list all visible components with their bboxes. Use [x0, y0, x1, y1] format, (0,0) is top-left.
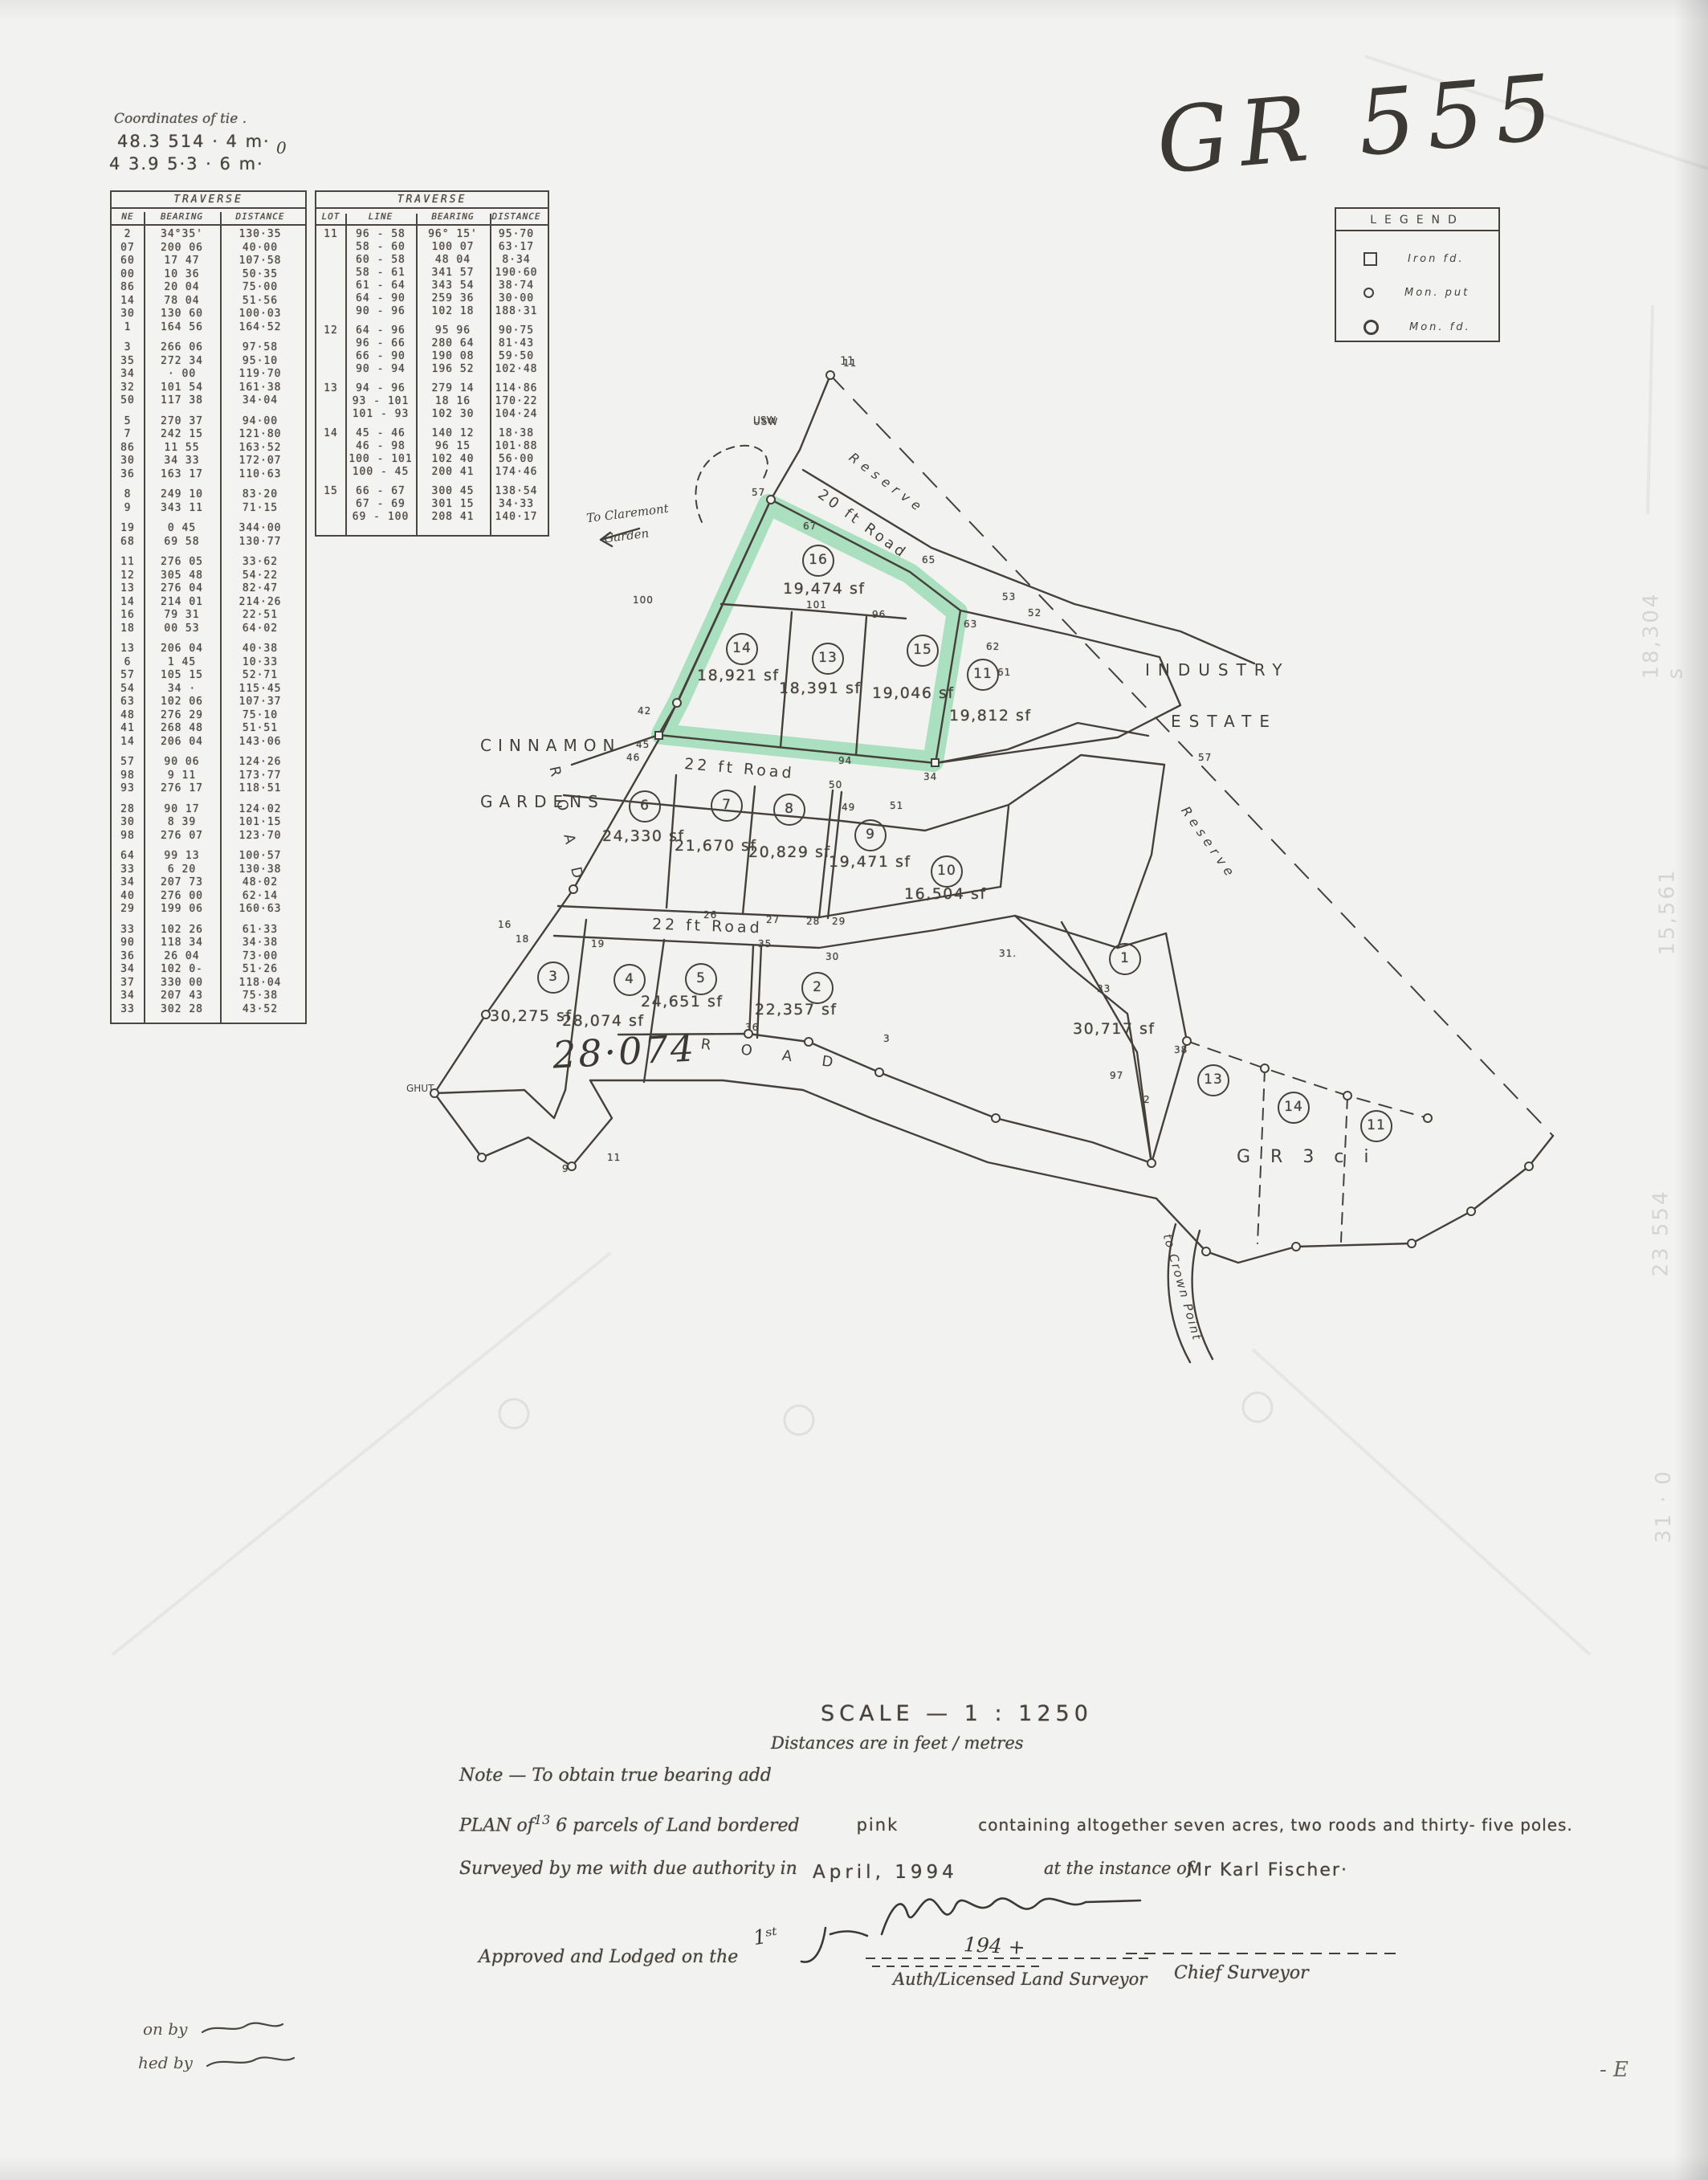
table-row: 8620 0475·00 — [112, 281, 305, 295]
vertex-label: 28 — [806, 916, 820, 927]
table-row: 90118 3434·38 — [112, 937, 305, 950]
table-cell — [316, 254, 345, 267]
table-cell: 107·37 — [220, 696, 300, 709]
plan-containing: containing altogether seven acres, two r… — [978, 1815, 1573, 1835]
table-cell — [316, 350, 345, 363]
table-cell: 83·20 — [220, 488, 300, 502]
table-cell: 64 - 90 — [345, 292, 416, 305]
industry-label: INDUSTRY — [1145, 660, 1290, 680]
table-group: 5790 06124·26989 11173·7793276 17118·51 — [112, 756, 305, 796]
table-cell: 110·63 — [220, 468, 300, 482]
table-cell: 119·70 — [220, 368, 300, 382]
lot-number-marker: 16 — [802, 545, 834, 577]
table-cell: 48 04 — [416, 254, 490, 267]
table-cell: 330 00 — [144, 977, 220, 990]
table-cell: 100·03 — [220, 308, 300, 321]
table-cell: 105 15 — [144, 669, 220, 683]
vertex-label: 31. — [999, 948, 1017, 959]
table-cell: 1 45 — [144, 656, 220, 670]
lot-area-label: 22,357 sf — [755, 1001, 838, 1019]
table-group: 33102 2661·3390118 3434·383626 0473·0034… — [112, 924, 305, 1017]
table-cell: 96 - 66 — [345, 337, 416, 350]
lot-number-marker: 9 — [854, 819, 887, 851]
vertex-label: 101 — [806, 599, 827, 610]
table-cell: 104·24 — [490, 408, 543, 421]
table-cell: 95 96 — [416, 325, 490, 337]
table-row: 1394 - 96279 14114·86 — [316, 382, 548, 395]
table-cell: 16 — [112, 609, 144, 623]
table-cell: 276 07 — [144, 830, 220, 843]
table-cell: 54·22 — [220, 569, 300, 583]
table-row: 1566 - 67300 45138·54 — [316, 485, 548, 498]
table-cell: 22·51 — [220, 609, 300, 623]
table-cell: 10·33 — [220, 656, 300, 670]
table-row: 8249 1083·20 — [112, 488, 305, 502]
table-cell: 61·33 — [220, 924, 300, 937]
lot-number-marker: 8 — [773, 794, 805, 826]
lot-number-marker: 15 — [907, 635, 939, 667]
col-header: LOT — [316, 211, 345, 222]
table-cell: 214·26 — [220, 596, 300, 610]
table-cell: 3 — [112, 341, 144, 355]
lot-number-marker: 11 — [1360, 1110, 1392, 1142]
column-rule — [490, 214, 491, 535]
table-cell: 40·38 — [220, 643, 300, 656]
table-row: 190 45344·00 — [112, 522, 305, 536]
table-cell: 73·00 — [220, 950, 300, 964]
table-cell: 305 48 — [144, 569, 220, 583]
lot-area-label: 19,471 sf — [829, 853, 911, 871]
table-cell: 124·02 — [220, 803, 300, 817]
table-cell: 276 04 — [144, 582, 220, 596]
table-cell: 30·00 — [490, 292, 543, 305]
table-row: 69 - 100208 41140·17 — [316, 511, 548, 524]
legend-item: Mon. fd. — [1364, 320, 1498, 335]
vertex-label: 27 — [766, 914, 780, 925]
lot-number-marker: 14 — [726, 633, 758, 665]
table-row: 989 11173·77 — [112, 770, 305, 783]
table-cell: 214 01 — [144, 596, 220, 610]
table-cell: 174·46 — [490, 466, 543, 479]
table-group: 1196 - 5896° 15'95·7058 - 60100 0763·176… — [316, 228, 548, 318]
table-cell: 17 47 — [144, 255, 220, 268]
table-body: 234°35'130·3507200 0640·006017 47107·580… — [112, 226, 305, 1016]
table-cell: 62·14 — [220, 890, 300, 904]
table-cell: 75·00 — [220, 281, 300, 295]
table-row: 1196 - 5896° 15'95·70 — [316, 228, 548, 241]
traverse-table-left: TRAVERSE NE BEARING DISTANCE 234°35'130·… — [110, 190, 307, 1024]
table-cell: 90·75 — [490, 325, 543, 337]
table-cell: 276 00 — [144, 890, 220, 904]
table-cell: 200 06 — [144, 242, 220, 255]
table-cell: 98 — [112, 770, 144, 783]
table-cell: 90 06 — [144, 756, 220, 770]
table-row: 13206 0440·38 — [112, 643, 305, 656]
table-cell: 00 — [112, 268, 144, 282]
client-name: Mr Karl Fischer· — [1187, 1860, 1348, 1880]
table-row: 234°35'130·35 — [112, 228, 305, 242]
table-cell: 86 — [112, 281, 144, 295]
table-cell: 199 06 — [144, 903, 220, 916]
table-row: 33302 2843·52 — [112, 1003, 305, 1017]
vertex-label: 26 — [703, 909, 717, 921]
vertex-label: 33 — [1097, 983, 1111, 994]
table-cell: 00 53 — [144, 623, 220, 636]
ghost-text: 18,304 s — [1640, 590, 1688, 680]
table-cell: 102·48 — [490, 363, 543, 376]
table-row: 46 - 9896 15101·88 — [316, 440, 548, 453]
table-row: 37330 00118·04 — [112, 977, 305, 990]
table-cell: 279 14 — [416, 382, 490, 395]
surveyor-title: Auth/Licensed Land Surveyor — [893, 1970, 1147, 1989]
vertex-label: 94 — [838, 755, 852, 766]
table-cell — [316, 498, 345, 511]
table-cell: 114·86 — [490, 382, 543, 395]
instance-line: at the instance of — [1044, 1859, 1192, 1878]
table-cell: 90 17 — [144, 803, 220, 817]
table-cell: 163·52 — [220, 442, 300, 455]
table-cell: 8 39 — [144, 816, 220, 830]
lot-number-marker: 2 — [801, 972, 834, 1004]
table-cell: 82·47 — [220, 582, 300, 596]
legend-item: Iron fd. — [1364, 252, 1498, 266]
table-row: 100 - 45200 41174·46 — [316, 466, 548, 479]
table-row: 1445 - 46140 1218·38 — [316, 427, 548, 440]
table-cell: 34·33 — [490, 498, 543, 511]
vertex-label: 30 — [825, 951, 839, 962]
table-cell: 300 45 — [416, 485, 490, 498]
table-row: 0010 3650·35 — [112, 268, 305, 282]
table-row: 1164 56164·52 — [112, 321, 305, 335]
table-cell: 54 — [112, 683, 144, 696]
ghost-text: 31 · 0 — [1652, 1469, 1676, 1543]
vertex-label: 35 — [758, 938, 772, 949]
table-cell: 98 — [112, 830, 144, 843]
table-cell: 130 60 — [144, 308, 220, 321]
table-cell: 48 — [112, 709, 144, 723]
scale-text: SCALE — 1 : 1250 — [821, 1701, 1093, 1726]
lot-area-label: 16,504 sf — [904, 885, 987, 903]
table-row: 101 - 93102 30104·24 — [316, 408, 548, 421]
table-cell: 280 64 — [416, 337, 490, 350]
vertex-label: 42 — [638, 705, 651, 716]
table-group: 3266 0697·5835272 3495·1034· 00119·70321… — [112, 341, 305, 408]
table-row: 34· 00119·70 — [112, 368, 305, 382]
vertex-label: 9 — [562, 1163, 569, 1174]
col-header: DISTANCE — [220, 211, 300, 222]
table-row: 98276 07123·70 — [112, 830, 305, 843]
column-rule — [220, 212, 222, 1023]
table-cell: 124·26 — [220, 756, 300, 770]
table-cell: 64·02 — [220, 623, 300, 636]
table-cell: 63 — [112, 696, 144, 709]
note-line: Note — To obtain true bearing add — [459, 1766, 772, 1786]
vertex-label: 29 — [832, 916, 846, 927]
table-cell: 207 73 — [144, 876, 220, 890]
table-row: 1264 - 9695 9690·75 — [316, 325, 548, 337]
table-row: 41268 4851·51 — [112, 722, 305, 736]
table-cell: 172·07 — [220, 455, 300, 468]
table-cell: 276 05 — [144, 556, 220, 569]
table-row: 34102 0-51·26 — [112, 963, 305, 977]
table-row: 61 - 64343 5438·74 — [316, 280, 548, 292]
table-row: 8611 55163·52 — [112, 442, 305, 455]
column-rule — [144, 212, 145, 1023]
col-header: LINE — [345, 211, 416, 222]
table-group: 1566 - 67300 45138·5467 - 69301 1534·336… — [316, 485, 548, 524]
table-cell: 13 — [112, 643, 144, 656]
vertex-label: 19 — [591, 938, 605, 949]
table-cell — [316, 241, 345, 254]
table-cell: 140 12 — [416, 427, 490, 440]
table-cell: 170·22 — [490, 395, 543, 408]
table-cell: 28 — [112, 803, 144, 817]
table-cell: 51·51 — [220, 722, 300, 736]
table-cell: 97·58 — [220, 341, 300, 355]
table-cell: 32 — [112, 382, 144, 395]
table-cell: 90 - 96 — [345, 305, 416, 318]
vertex-label: 96 — [872, 609, 886, 620]
table-cell: 12 — [316, 325, 345, 337]
table-row: 96 - 66280 6481·43 — [316, 337, 548, 350]
lot-area-label: 28,074 sf — [562, 1012, 645, 1030]
table-cell: 100 - 45 — [345, 466, 416, 479]
table-cell: 40 — [112, 890, 144, 904]
vertex-label: 11 — [843, 357, 857, 369]
table-row: 1679 3122·51 — [112, 609, 305, 623]
table-cell: 14 — [112, 295, 144, 308]
table-cell: 8·34 — [490, 254, 543, 267]
lot-number-marker: 7 — [711, 790, 743, 822]
table-cell: 14 — [316, 427, 345, 440]
lot-number-marker: 4 — [613, 964, 646, 996]
table-cell: 5 — [112, 415, 144, 429]
approved-line: Approved and Lodged on the — [479, 1947, 738, 1967]
table-cell: 34°35' — [144, 228, 220, 242]
dot-symbol-icon — [1364, 288, 1374, 298]
table-row: 14214 01214·26 — [112, 596, 305, 610]
table-cell: 270 37 — [144, 415, 220, 429]
table-cell: 94·00 — [220, 415, 300, 429]
table-title: TRAVERSE — [112, 192, 305, 209]
lot-number-marker: 1 — [1109, 943, 1141, 975]
table-cell: 11 55 — [144, 442, 220, 455]
table-cell — [316, 466, 345, 479]
table-row: 1800 5364·02 — [112, 623, 305, 636]
table-cell: 196 52 — [416, 363, 490, 376]
table-row: 5434 ·115·45 — [112, 683, 305, 696]
table-cell: 190 08 — [416, 350, 490, 363]
table-cell: 130·77 — [220, 536, 300, 549]
table-row: 67 - 69301 1534·33 — [316, 498, 548, 511]
table-cell: 93 — [112, 782, 144, 796]
table-row: 63102 06107·37 — [112, 696, 305, 709]
table-cell: 102 26 — [144, 924, 220, 937]
table-cell: 9 — [112, 502, 144, 516]
table-cell: 46 - 98 — [345, 440, 416, 453]
table-cell: 59·50 — [490, 350, 543, 363]
table-row: 6869 58130·77 — [112, 536, 305, 549]
table-cell: 43·52 — [220, 1003, 300, 1017]
table-row: 308 39101·15 — [112, 816, 305, 830]
lot-number-marker: 3 — [537, 961, 569, 994]
legend-item-label: Mon. put — [1404, 287, 1470, 299]
table-cell — [316, 267, 345, 280]
table-row: 48276 2975·10 — [112, 709, 305, 723]
table-cell: 101·88 — [490, 440, 543, 453]
table-row: 07200 0640·00 — [112, 242, 305, 255]
table-cell: 68 — [112, 536, 144, 549]
table-cell: 13 — [316, 382, 345, 395]
legend-box: LEGEND Iron fd.Mon. putMon. fd. — [1335, 207, 1500, 342]
table-cell: 57 — [112, 669, 144, 683]
table-cell: 118·51 — [220, 782, 300, 796]
plan-prefix: PLAN of — [459, 1815, 534, 1835]
table-row: 33102 2661·33 — [112, 924, 305, 937]
table-cell: 301 15 — [416, 498, 490, 511]
table-row: 30130 60100·03 — [112, 308, 305, 321]
table-cell: 208 41 — [416, 511, 490, 524]
table-cell: 276 17 — [144, 782, 220, 796]
handwritten-area-note: 28·074 — [552, 1026, 698, 1076]
table-cell: 160·63 — [220, 903, 300, 916]
table-cell: 56·00 — [490, 453, 543, 466]
table-cell: 11 — [316, 228, 345, 241]
table-cell: 34 — [112, 990, 144, 1003]
table-row: 6017 47107·58 — [112, 255, 305, 268]
table-cell: 15 — [316, 485, 345, 498]
table-cell: 163 17 — [144, 468, 220, 482]
vertex-label: 62 — [986, 641, 1000, 652]
vertex-label: 50 — [829, 779, 842, 790]
table-cell: 344·00 — [220, 522, 300, 536]
table-cell: 99 13 — [144, 850, 220, 863]
table-cell: 268 48 — [144, 722, 220, 736]
table-cell: 130·35 — [220, 228, 300, 242]
table-cell: 200 41 — [416, 466, 490, 479]
table-cell: 58 - 61 — [345, 267, 416, 280]
table-cell: 95·70 — [490, 228, 543, 241]
table-cell: 50 — [112, 394, 144, 408]
table-row: 32101 54161·38 — [112, 382, 305, 395]
table-cell: 19 — [112, 522, 144, 536]
table-cell: 30 — [112, 816, 144, 830]
table-cell: 75·10 — [220, 709, 300, 723]
estate-label: ESTATE — [1171, 712, 1278, 731]
scale-subtext: Distances are in feet / metres — [771, 1733, 1024, 1753]
table-group: 8249 1083·209343 1171·15 — [112, 488, 305, 515]
table-cell: 343 54 — [416, 280, 490, 292]
vertex-label: 18 — [516, 933, 529, 945]
table-row: 336 20130·38 — [112, 863, 305, 877]
vertex-label: 61 — [997, 667, 1011, 678]
table-row: 57105 1552·71 — [112, 669, 305, 683]
lot-area-label: 19,812 sf — [949, 707, 1032, 725]
table-cell: 138·54 — [490, 485, 543, 498]
lot-area-label: 20,829 sf — [748, 843, 831, 861]
table-row: 34207 7348·02 — [112, 876, 305, 890]
table-group: 6499 13100·57336 20130·3834207 7348·0240… — [112, 850, 305, 916]
legend-item-label: Iron fd. — [1408, 253, 1464, 265]
vertex-label: 3 — [883, 1033, 891, 1044]
table-row: 90 - 96102 18188·31 — [316, 305, 548, 318]
table-cell: 100 - 101 — [345, 453, 416, 466]
ghost-text: 23 554 — [1649, 1190, 1673, 1277]
table-cell — [316, 408, 345, 421]
table-group: 1445 - 46140 1218·3846 - 9896 15101·8810… — [316, 427, 548, 479]
column-rule — [416, 214, 418, 535]
table-cell: 36 — [112, 950, 144, 964]
table-cell: 40·00 — [220, 242, 300, 255]
table-cell: · 00 — [144, 368, 220, 382]
table-cell: 48·02 — [220, 876, 300, 890]
vertex-label: 38 — [1174, 1044, 1188, 1055]
lot-area-label: 18,391 sf — [779, 680, 862, 697]
table-cell: 81·43 — [490, 337, 543, 350]
table-row: 12305 4854·22 — [112, 569, 305, 583]
table-cell: 118·04 — [220, 977, 300, 990]
table-cell: 0 45 — [144, 522, 220, 536]
table-cell: 57 — [112, 756, 144, 770]
table-cell: 1 — [112, 321, 144, 335]
table-cell: 118 34 — [144, 937, 220, 950]
table-cell: 51·26 — [220, 963, 300, 977]
table-row: 5790 06124·26 — [112, 756, 305, 770]
table-cell: 164·52 — [220, 321, 300, 335]
approved-year-handwriting: 194 + — [963, 1933, 1025, 1959]
table-cell: 249 10 — [144, 488, 220, 502]
lot-number-marker: 13 — [812, 643, 844, 675]
vertex-label: 67 — [803, 521, 817, 532]
surveyed-line: Surveyed by me with due authority in — [459, 1859, 797, 1879]
lot-area-label: 30,275 sf — [490, 1007, 573, 1025]
table-cell: 36 — [112, 468, 144, 482]
table-cell: 33 — [112, 863, 144, 877]
table-cell: 34·38 — [220, 937, 300, 950]
vertex-label: 49 — [842, 802, 855, 813]
col-header: DISTANCE — [490, 211, 543, 222]
table-cell — [316, 363, 345, 376]
table-group: 5270 3794·007242 15121·808611 55163·5230… — [112, 415, 305, 482]
table-cell: 34 — [112, 963, 144, 977]
lot-area-label: 21,670 sf — [675, 837, 757, 855]
table-cell: 102 40 — [416, 453, 490, 466]
table-cell: 107·58 — [220, 255, 300, 268]
table-cell: 11 — [112, 556, 144, 569]
table-cell: 75·38 — [220, 990, 300, 1003]
table-cell: 61 - 64 — [345, 280, 416, 292]
table-title: TRAVERSE — [316, 192, 548, 209]
corner-note-zero: 0 — [276, 138, 287, 157]
table-cell: 100 07 — [416, 241, 490, 254]
vertex-label: 16 — [498, 919, 512, 930]
vertex-label: 57 — [1198, 752, 1212, 763]
table-cell — [316, 305, 345, 318]
traverse-table-lots: TRAVERSE LOT LINE BEARING DISTANCE 1196 … — [315, 190, 549, 537]
lot-number-marker: 13 — [1197, 1064, 1229, 1096]
table-group: 1394 - 96279 14114·8693 - 10118 16170·22… — [316, 382, 548, 421]
survey-plan-page: Coordinates of tie . 48.3 514 · 4 m· 4 3… — [0, 0, 1708, 2180]
table-cell: 71·15 — [220, 502, 300, 516]
table-cell: 266 06 — [144, 341, 220, 355]
table-cell: 102 0- — [144, 963, 220, 977]
lot-area-label: 19,046 sf — [872, 684, 955, 702]
corner-note-line2: 48.3 514 · 4 m· — [117, 132, 271, 151]
table-cell: 130·38 — [220, 863, 300, 877]
table-cell — [316, 440, 345, 453]
table-cell: 29 — [112, 903, 144, 916]
table-cell — [316, 292, 345, 305]
